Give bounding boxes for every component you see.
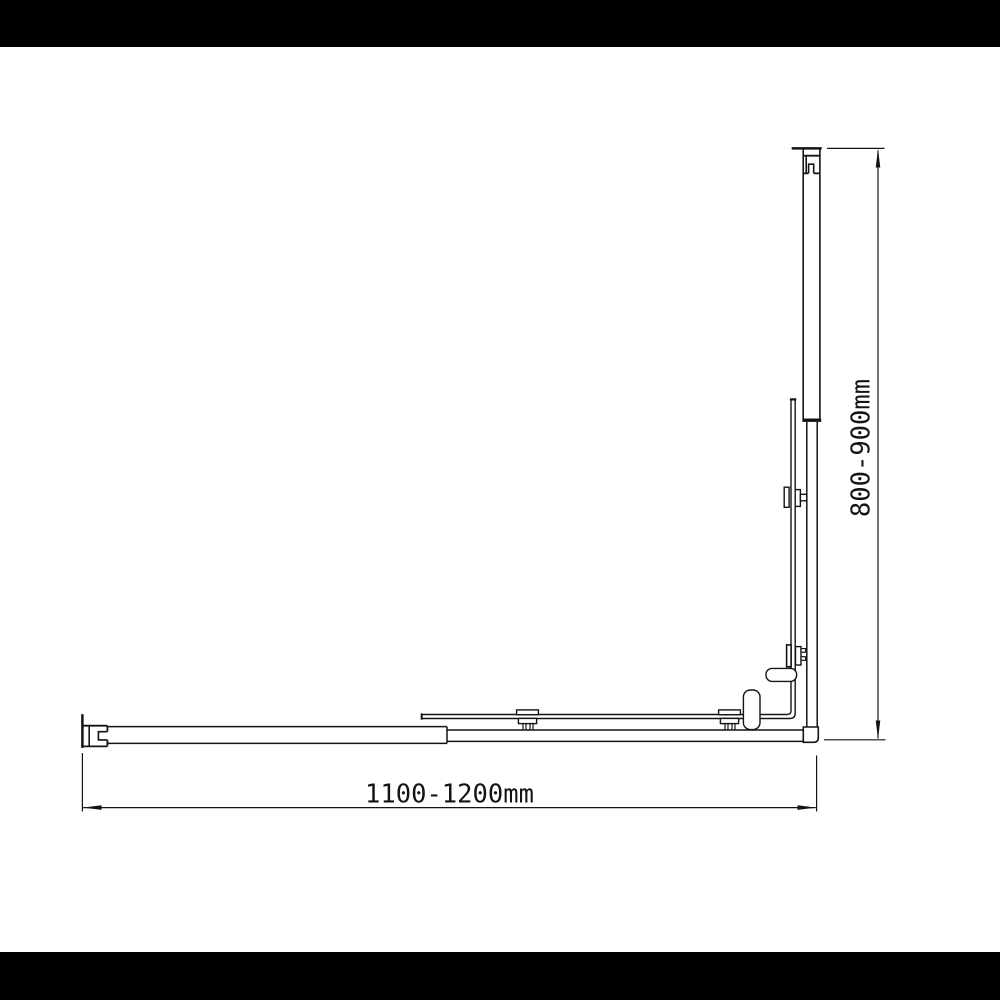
letterbox-bottom: [0, 952, 1000, 1000]
bottom-fixed-rail: [107, 727, 447, 744]
top-wall-profile: [792, 148, 822, 173]
arrow-up-icon: [876, 149, 881, 168]
arrow-down-icon: [876, 721, 881, 740]
door-handle: [766, 668, 797, 681]
bottom-door-rail: [447, 730, 803, 741]
right-wall-rail: [802, 149, 821, 727]
right-glass-panel: [422, 399, 797, 718]
right-panel-clamp-upper: [784, 487, 807, 507]
door-knob: [743, 690, 760, 730]
bottom-roller-clamp-left: [517, 710, 539, 730]
width-dimension: 1100-1200mm: [82, 753, 816, 812]
corner-foot: [803, 727, 818, 742]
width-dimension-label: 1100-1200mm: [365, 780, 534, 810]
bottom-roller-clamp-right: [719, 710, 741, 730]
height-dimension-label: 800-900mm: [847, 379, 877, 517]
arrow-right-icon: [798, 805, 817, 810]
drawing-canvas: 800-900mm 1100-1200mm: [0, 0, 1000, 1000]
arrow-left-icon: [83, 805, 102, 810]
letterbox-top: [0, 0, 1000, 47]
height-dimension: 800-900mm: [824, 148, 886, 739]
shower-screen-diagram: 800-900mm 1100-1200mm: [0, 0, 1000, 1000]
right-panel-clamp-lower: [787, 645, 806, 667]
left-wall-profile: [82, 714, 107, 748]
